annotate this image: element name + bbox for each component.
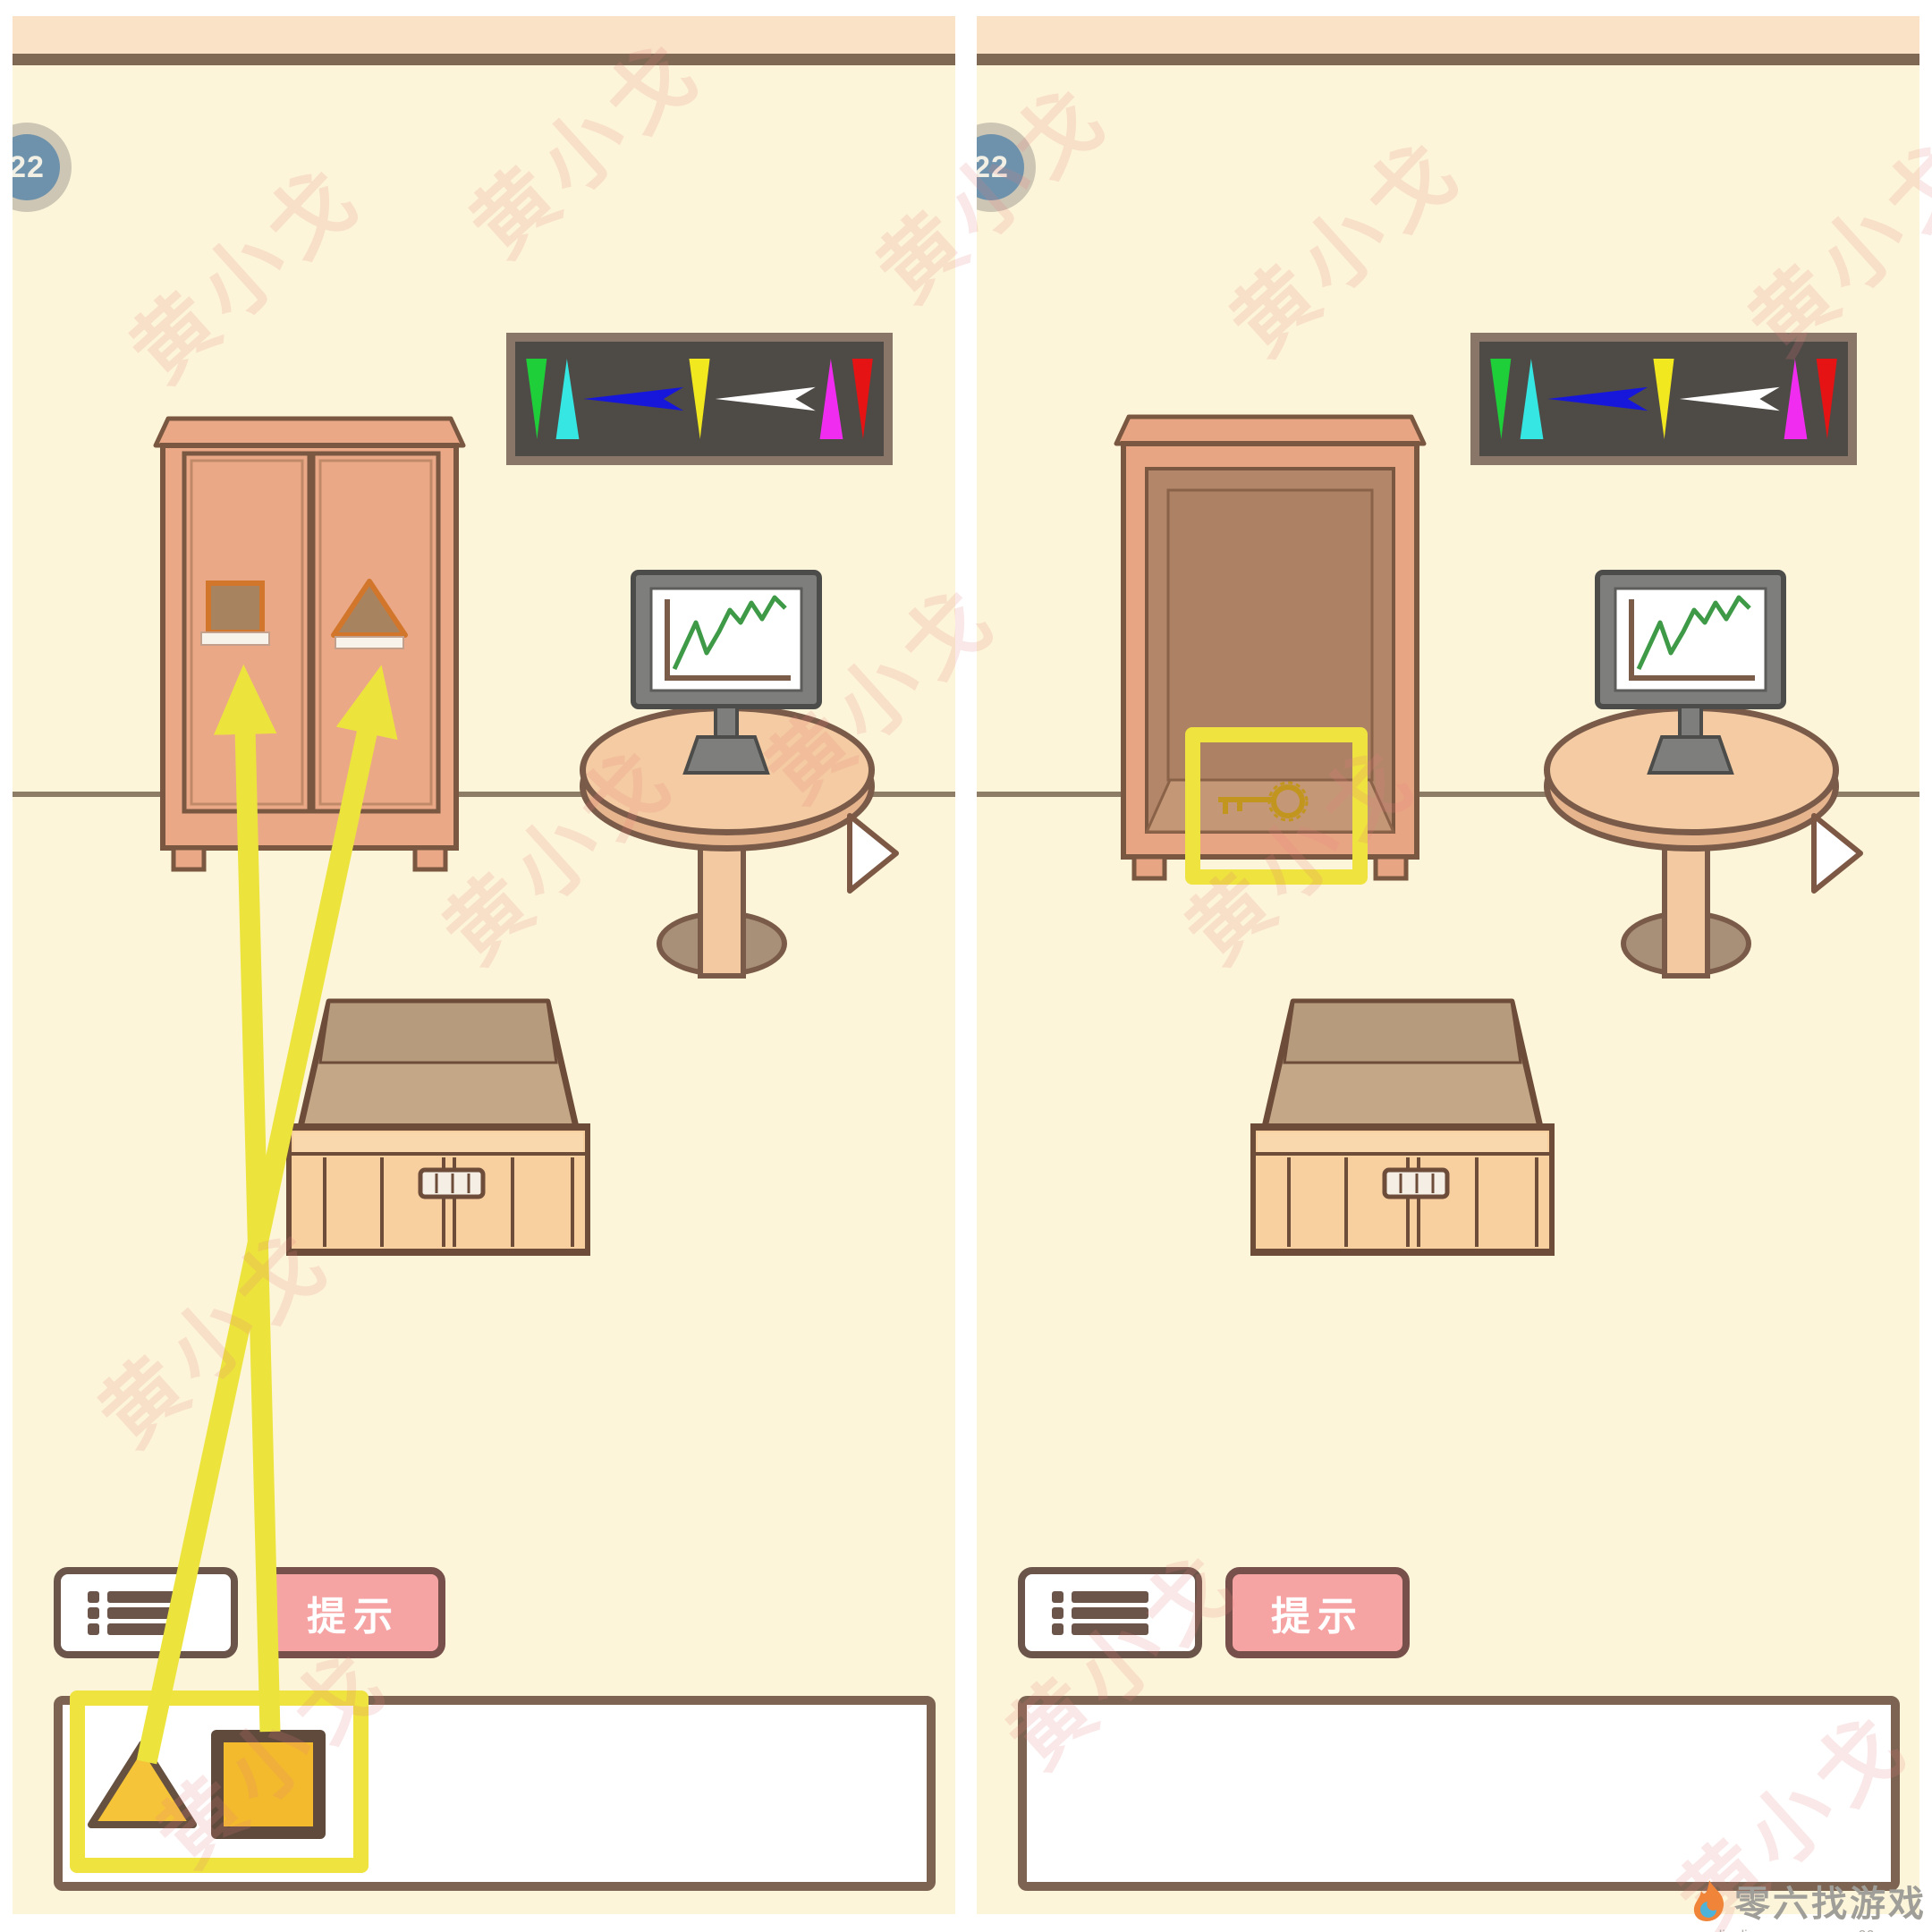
red-down-arrow (1811, 359, 1842, 439)
level-badge: 22 (977, 123, 1036, 212)
magenta-up-arrow (817, 359, 847, 439)
monitor-neck (716, 707, 737, 737)
white-left-arrow (1680, 386, 1780, 412)
ceiling-trim (977, 54, 1919, 65)
highlight-key (1185, 727, 1368, 885)
box-back-wall (320, 1002, 556, 1063)
ceiling-trim (13, 54, 955, 65)
storage-box[interactable] (286, 995, 590, 1263)
menu-button[interactable] (1018, 1567, 1202, 1658)
site-logo-text: 零六找游戏 (1734, 1875, 1927, 1927)
level-badge: 22 (13, 123, 72, 212)
play-triangle-icon (850, 816, 896, 891)
step-1-screenshot: 22 (13, 16, 955, 1914)
level-number: 22 (13, 150, 45, 185)
wardrobe-top (156, 419, 463, 445)
box-front-top-board (1258, 1132, 1547, 1154)
cyan-up-arrow (1517, 359, 1547, 439)
hint-button[interactable]: 提示 (1225, 1567, 1410, 1658)
inventory-bar-empty (1018, 1696, 1900, 1891)
square-slot-tray (201, 632, 269, 645)
flame-icon (1690, 1878, 1729, 1923)
level-badge-circle: 22 (977, 134, 1024, 200)
inventory-item-triangle[interactable] (82, 1735, 202, 1832)
square-slot[interactable] (208, 583, 262, 632)
monitor-stand (1649, 737, 1732, 773)
triangle-slot-tray (335, 637, 403, 648)
box-back-wall (1284, 1002, 1521, 1063)
wardrobe-foot-left (1134, 857, 1165, 878)
yellow-down-arrow (1648, 359, 1679, 439)
menu-button[interactable] (54, 1567, 238, 1658)
inventory-item-square[interactable] (211, 1730, 326, 1839)
box-front-top-board (293, 1132, 583, 1154)
triangle-item-shape (91, 1744, 193, 1825)
wardrobe-foot-right (1376, 857, 1406, 878)
ceiling-band (13, 16, 955, 54)
step-2-screenshot: 22 (977, 16, 1919, 1914)
hint-button[interactable]: 提示 (261, 1567, 445, 1658)
computer-monitor[interactable] (1592, 567, 1789, 786)
level-number: 22 (977, 150, 1009, 185)
computer-monitor[interactable] (628, 567, 825, 786)
list-icon (107, 1587, 184, 1640)
ceiling-band (977, 16, 1919, 54)
monitor-neck (1680, 707, 1701, 737)
site-watermark: 零六找游戏 www.lingliuyx.com www.06zyx.com (1684, 1875, 1927, 1932)
monitor-stand (685, 737, 767, 773)
arrow-code-board[interactable] (506, 333, 893, 465)
next-room-arrow[interactable] (1805, 809, 1868, 894)
yellow-down-arrow (684, 359, 715, 439)
cyan-up-arrow (553, 359, 583, 439)
next-room-arrow[interactable] (841, 809, 903, 894)
blue-left-arrow (1547, 386, 1648, 412)
site-url-1: www.lingliuyx.com (1684, 1928, 1801, 1932)
wardrobe-closed[interactable] (148, 415, 470, 880)
blue-left-arrow (583, 386, 683, 412)
wardrobe-top (1116, 417, 1424, 444)
magenta-up-arrow (1781, 359, 1811, 439)
play-triangle-icon (1814, 816, 1860, 891)
green-down-arrow (1486, 359, 1516, 439)
white-left-arrow (716, 386, 816, 412)
level-badge-circle: 22 (13, 134, 60, 200)
red-down-arrow (847, 359, 877, 439)
list-icon (1072, 1587, 1148, 1640)
walkthrough-image: 22 (0, 0, 1932, 1932)
green-down-arrow (521, 359, 552, 439)
site-url-2: www.06zyx.com (1824, 1928, 1927, 1932)
storage-box[interactable] (1250, 995, 1555, 1263)
wardrobe-foot-left (174, 848, 204, 869)
wardrobe-foot-right (415, 848, 445, 869)
arrow-code-board[interactable] (1470, 333, 1857, 465)
